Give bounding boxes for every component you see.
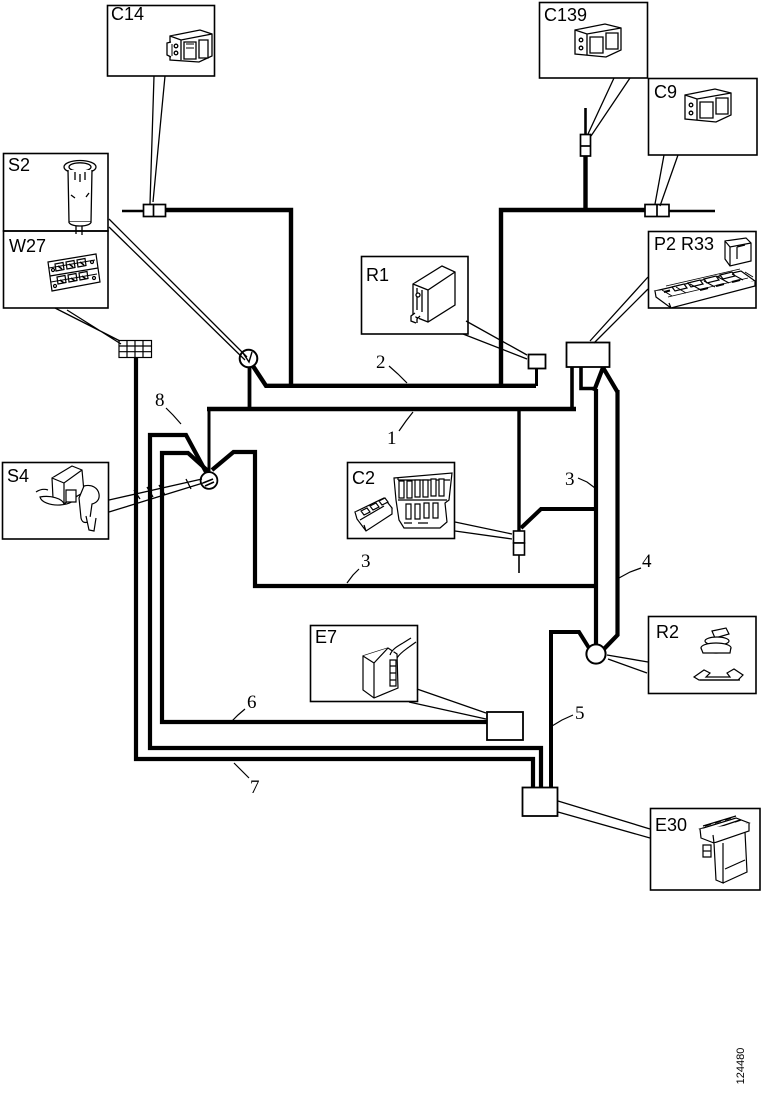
svg-text:S2: S2 (8, 155, 30, 175)
svg-text:7: 7 (250, 777, 260, 798)
svg-text:1: 1 (387, 428, 397, 449)
svg-text:2: 2 (376, 352, 386, 373)
svg-text:C139: C139 (544, 5, 587, 25)
svg-text:3: 3 (361, 551, 371, 572)
svg-text:124480: 124480 (735, 1048, 747, 1085)
svg-text:6: 6 (247, 692, 257, 713)
svg-text:P2 R33: P2 R33 (654, 234, 714, 254)
svg-text:C14: C14 (111, 4, 144, 24)
svg-text:E30: E30 (655, 815, 687, 835)
svg-text:R2: R2 (656, 622, 679, 642)
svg-text:S4: S4 (7, 466, 29, 486)
svg-text:C2: C2 (352, 468, 375, 488)
svg-text:C9: C9 (654, 82, 677, 102)
svg-text:4: 4 (642, 551, 652, 572)
svg-text:3: 3 (565, 469, 575, 490)
svg-text:W27: W27 (9, 236, 46, 256)
svg-text:5: 5 (575, 703, 585, 724)
svg-text:R1: R1 (366, 265, 389, 285)
svg-text:8: 8 (155, 390, 165, 411)
svg-text:E7: E7 (315, 627, 337, 647)
